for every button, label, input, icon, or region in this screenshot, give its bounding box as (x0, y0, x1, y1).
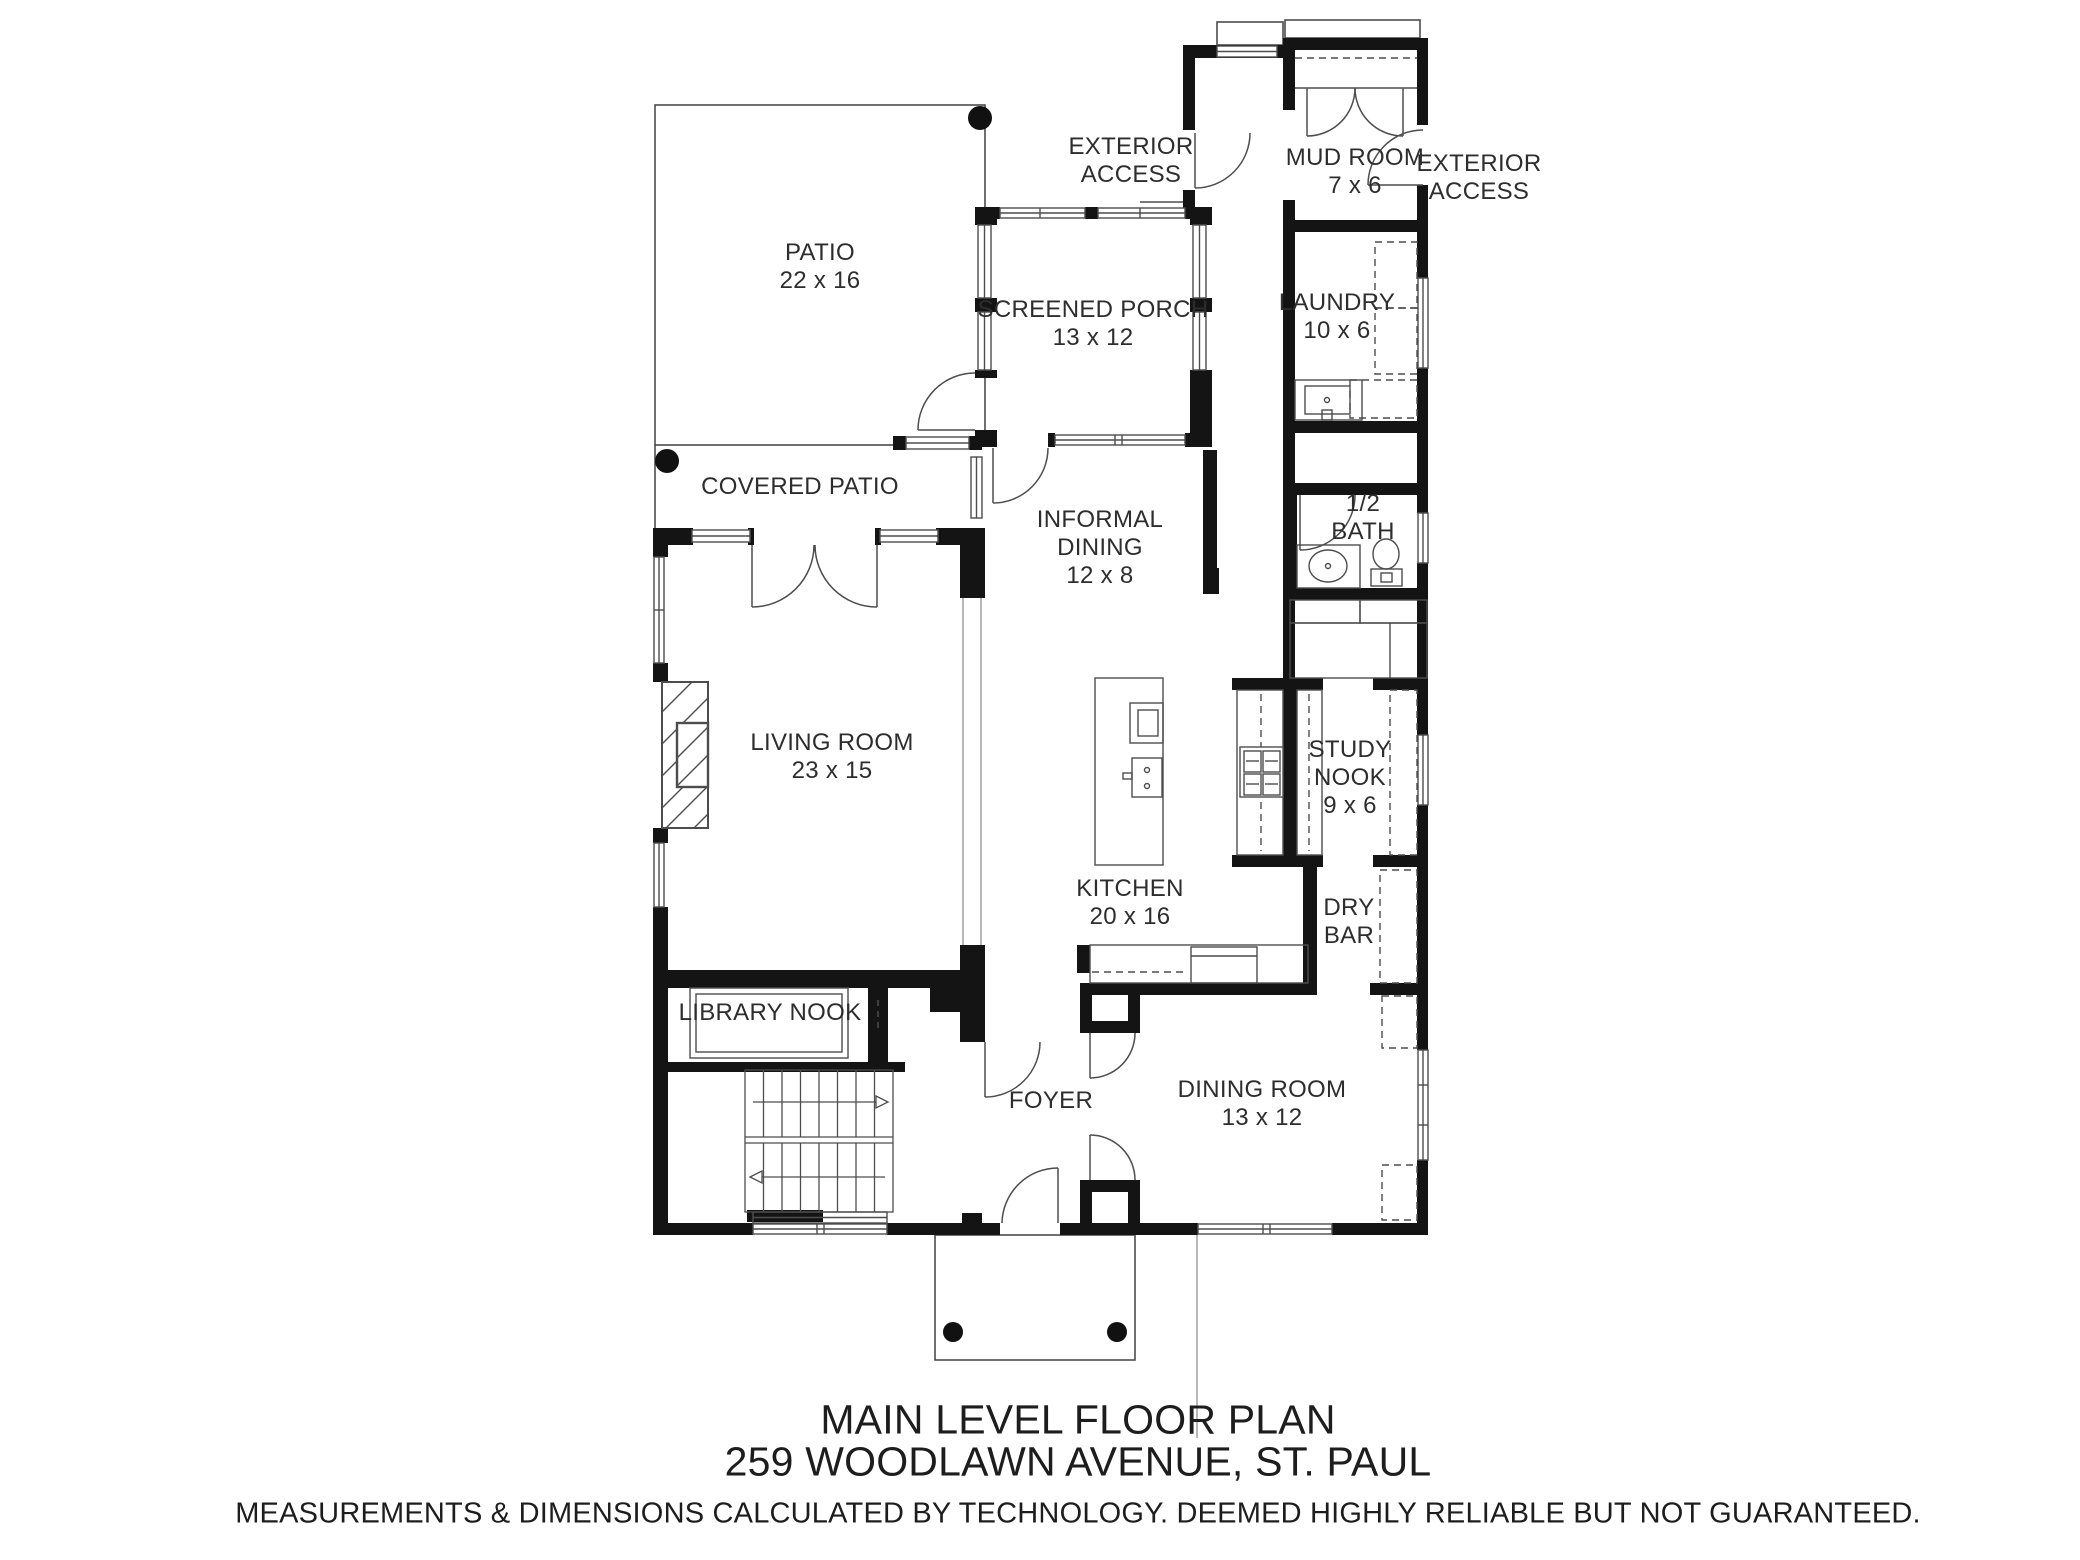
columns (655, 106, 1127, 1342)
room-label-kitchen: KITCHEN 20 x 16 (1076, 875, 1183, 931)
hall-cabinets (1290, 600, 1427, 678)
front-porch-outline (935, 1235, 1135, 1360)
door-informal-dining (993, 448, 1048, 503)
door-french-left (752, 545, 814, 607)
dry-bar-cabinets (1380, 870, 1417, 983)
floor-plan-page: PATIO 22 x 16 COVERED PATIO SCREENED POR… (0, 0, 2080, 1560)
window-informal-west (971, 457, 982, 518)
window-living-west-lower (654, 843, 664, 907)
staircase (745, 1070, 893, 1212)
covered-patio-post (655, 449, 679, 473)
room-label-library-nook: LIBRARY NOOK (679, 999, 862, 1027)
door-mudroom-closet-right (1355, 88, 1403, 136)
fixtures (662, 58, 1427, 1223)
room-label-covered-patio: COVERED PATIO (701, 473, 899, 501)
room-label-mud-room: MUD ROOM 7 x 6 (1286, 144, 1424, 200)
stair-arrow-up (753, 1096, 888, 1108)
room-label-half-bath: 1/2 BATH (1323, 490, 1403, 546)
door-closet-top (1090, 1033, 1135, 1078)
window-covered-patio (906, 437, 969, 449)
door-porch-to-patio (918, 373, 975, 430)
annotation-exterior-access-left: EXTERIOR ACCESS (1066, 133, 1196, 189)
room-label-screened-porch: SCREENED PORCH 13 x 12 (978, 296, 1209, 352)
porch-column-right (1107, 1322, 1127, 1342)
window-living-north-b (880, 530, 938, 542)
room-label-study-nook: STUDY NOOK 9 x 6 (1295, 736, 1405, 820)
plan-disclaimer: MEASUREMENTS & DIMENSIONS CALCULATED BY … (235, 1498, 1921, 1531)
room-label-laundry: LAUNDRY 10 x 6 (1279, 289, 1395, 345)
door-closet-bottom (1090, 1135, 1135, 1180)
window-living-west-upper (654, 557, 664, 663)
room-label-foyer: FOYER (1009, 1087, 1093, 1115)
room-label-dining-room: DINING ROOM 13 x 12 (1178, 1076, 1347, 1132)
window-stair-south (753, 1224, 887, 1234)
porch-column-left (943, 1322, 963, 1342)
kitchen-island (1095, 678, 1163, 865)
door-french-right (815, 545, 877, 607)
patio-post (968, 106, 992, 130)
plan-title: MAIN LEVEL FLOOR PLAN (820, 1397, 1335, 1444)
dining-builtins (1382, 996, 1417, 1220)
window-porch-east-a (1193, 225, 1206, 298)
door-exterior-corridor (1195, 133, 1250, 188)
door-front-entry (1002, 1168, 1058, 1223)
room-label-informal-dining: INFORMAL DINING 12 x 8 (1010, 506, 1190, 590)
window-bath-east (1418, 513, 1428, 563)
bath-sink (1297, 545, 1360, 588)
room-label-patio: PATIO 22 x 16 (780, 239, 861, 295)
stair-arrow-down (750, 1171, 885, 1183)
kitchen-counter-south (1090, 945, 1308, 983)
room-label-living-room: LIVING ROOM 23 x 15 (750, 729, 913, 785)
floor-plan-drawing (0, 0, 2080, 1560)
annotation-exterior-access-right: EXTERIOR ACCESS (1414, 150, 1544, 206)
window-porch-top-b (1098, 208, 1185, 218)
rear-stoop (1285, 20, 1420, 38)
window-porch-top-a (1000, 208, 1085, 218)
window-porch-west-a (978, 225, 991, 298)
side-stoop (1217, 22, 1283, 45)
bath-toilet (1371, 539, 1402, 586)
window-corridor-top (1217, 46, 1277, 57)
plan-address: 259 WOODLAWN AVENUE, ST. PAUL (725, 1439, 1432, 1486)
window-laundry-east (1418, 278, 1428, 368)
mudroom-closet (1295, 58, 1417, 88)
window-living-north-a (692, 530, 750, 542)
room-label-dry-bar: DRY BAR (1314, 894, 1384, 950)
window-dining-east (1418, 1050, 1428, 1160)
window-nook-east (1418, 735, 1428, 805)
window-informal-top (1055, 435, 1185, 445)
door-mudroom-closet-left (1307, 88, 1355, 136)
fireplace (662, 682, 708, 828)
window-dining-south (1198, 1224, 1332, 1234)
kitchen-counter-east (1237, 690, 1283, 855)
